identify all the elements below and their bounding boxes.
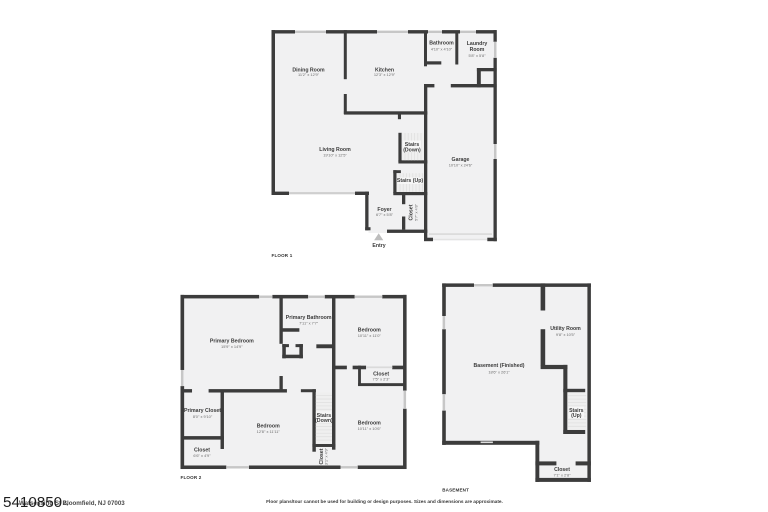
svg-text:7'5" x 2'3": 7'5" x 2'3" — [373, 377, 391, 382]
svg-text:6'7" x 5'8": 6'7" x 5'8" — [376, 212, 394, 217]
svg-text:10'10" x 24'6": 10'10" x 24'6" — [449, 162, 473, 167]
svg-text:11'2" x 12'9": 11'2" x 12'9" — [298, 72, 320, 77]
svg-text:(Up): (Up) — [571, 413, 582, 419]
svg-text:10'11" x 11'0": 10'11" x 11'0" — [358, 333, 382, 338]
svg-text:12'8" x 11'11": 12'8" x 11'11" — [257, 429, 281, 434]
svg-text:BASEMENT: BASEMENT — [442, 488, 469, 493]
svg-text:(Down): (Down) — [403, 147, 421, 153]
svg-text:Basement (Finished): Basement (Finished) — [473, 363, 524, 369]
svg-text:Bloomfield, NJ 07003: Bloomfield, NJ 07003 — [63, 500, 126, 507]
svg-text:19'10" x 12'5": 19'10" x 12'5" — [323, 152, 347, 157]
svg-text:5'8" x 5'8": 5'8" x 5'8" — [468, 53, 486, 58]
svg-text:12'3" x 12'9": 12'3" x 12'9" — [374, 72, 396, 77]
svg-text:15'9" x 14'9": 15'9" x 14'9" — [221, 344, 243, 349]
svg-text:Stairs (Up): Stairs (Up) — [397, 178, 424, 184]
svg-text:FLOOR 2: FLOOR 2 — [181, 475, 202, 480]
svg-text:FLOOR 1: FLOOR 1 — [272, 253, 293, 258]
svg-text:10'11" x 10'6": 10'11" x 10'6" — [358, 426, 382, 431]
svg-text:7'11" x 7'7": 7'11" x 7'7" — [299, 320, 319, 325]
svg-text:Floor plans/tour cannot be use: Floor plans/tour cannot be used for buil… — [266, 499, 503, 505]
svg-text:(Down): (Down) — [315, 418, 333, 424]
svg-text:18'6" x 26'1": 18'6" x 26'1" — [488, 369, 510, 374]
svg-text:Entry: Entry — [372, 243, 385, 249]
svg-text:8'0" x 9'10": 8'0" x 9'10" — [193, 414, 213, 419]
svg-text:4'10" x 4'10": 4'10" x 4'10" — [431, 46, 453, 51]
svg-text:5'7" x 4'8": 5'7" x 4'8" — [413, 203, 418, 221]
svg-text:7'1" x 2'8": 7'1" x 2'8" — [553, 472, 571, 477]
svg-text:9'8" x 10'5": 9'8" x 10'5" — [556, 332, 576, 337]
svg-text:3'1" x 4'9": 3'1" x 4'9" — [324, 447, 329, 465]
svg-text:6'6" x 4'9": 6'6" x 4'9" — [193, 453, 211, 458]
svg-text:5410850: 5410850 — [3, 494, 62, 511]
